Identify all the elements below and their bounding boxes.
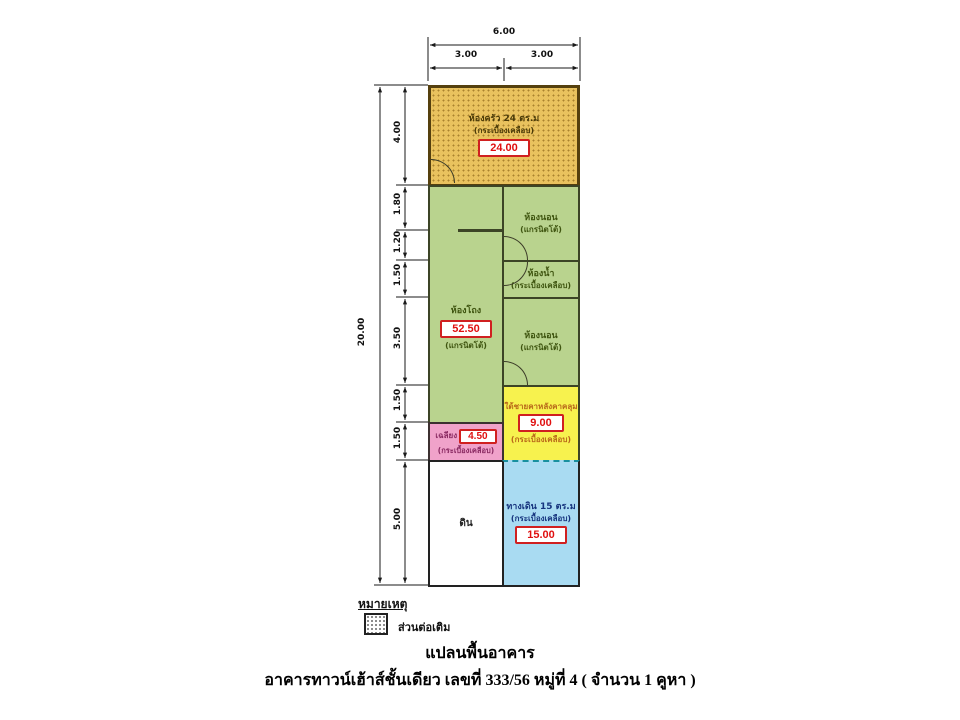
kitchen-name: ห้องครัว 24 ตร.ม (469, 113, 539, 125)
extension-swatch-icon (364, 613, 388, 635)
room-soil: ดิน (428, 460, 504, 587)
porch-area-value: 4.50 (459, 429, 496, 444)
dim-left-total: 20.00 (357, 312, 367, 352)
bedroom-top-name: ห้องนอน (524, 212, 557, 224)
plan-title: แปลนพื้นอาคาร (0, 641, 960, 666)
dim-left-seg-8: 5.00 (393, 499, 403, 539)
legend-extension-label: ส่วนต่อเติม (398, 618, 450, 636)
bathroom-material: (กระเบื้องเคลือบ) (511, 280, 571, 291)
hall-material: (แกรนิตโต้) (440, 340, 492, 351)
dim-top-total: 6.00 (469, 27, 539, 37)
bedroom-top-material: (แกรนิตโต้) (520, 224, 562, 235)
soil-name: ดิน (459, 516, 472, 531)
room-porch: เฉลียง 4.50 (กระเบื้องเคลือบ) (428, 422, 504, 462)
kitchen-area-value: 24.00 (478, 139, 530, 157)
dim-top-left: 3.00 (431, 50, 501, 60)
porch-material: (กระเบื้องเคลือบ) (438, 446, 494, 457)
floor-plan-page: ห้องครัว 24 ตร.ม (กระเบื้องเคลือบ) 24.00… (0, 0, 960, 720)
hall-area-value: 52.50 (440, 320, 492, 338)
kitchen-material: (กระเบื้องเคลือบ) (474, 125, 534, 136)
porch-name: เฉลียง (435, 431, 457, 442)
room-walkway: ทางเดิน 15 ตร.ม (กระเบื้องเคลือบ) 15.00 (502, 460, 580, 587)
covered-area-material: (กระเบื้องเคลือบ) (511, 434, 571, 445)
walkway-area-value: 15.00 (515, 526, 567, 544)
walkway-name: ทางเดิน 15 ตร.ม (506, 501, 575, 513)
bedroom-bottom-name: ห้องนอน (524, 330, 557, 342)
dim-left-seg-1: 4.00 (393, 112, 403, 152)
bathroom-name: ห้องน้ำ (528, 268, 555, 280)
dim-left-seg-7: 1.50 (393, 418, 403, 458)
legend-title: หมายเหตุ (358, 595, 407, 614)
covered-area-value: 9.00 (518, 414, 563, 432)
dim-left-seg-2: 1.80 (393, 184, 403, 224)
walkway-material: (กระเบื้องเคลือบ) (511, 513, 571, 524)
dim-left-seg-4: 1.50 (393, 255, 403, 295)
covered-area-name: ใต้ชายคาหลังคาคลุม (504, 402, 577, 413)
dim-left-seg-6: 1.50 (393, 380, 403, 420)
dim-top-right: 3.00 (507, 50, 577, 60)
room-hall: ห้องโถง 52.50 (แกรนิตโต้) (428, 185, 504, 424)
room-covered-area: ใต้ชายคาหลังคาคลุม 9.00 (กระเบื้องเคลือบ… (502, 385, 580, 462)
dim-left-seg-5: 3.50 (393, 318, 403, 358)
bedroom-bottom-material: (แกรนิตโต้) (520, 342, 562, 353)
plan-subtitle: อาคารทาวน์เฮ้าส์ชั้นเดียว เลขที่ 333/56 … (0, 668, 960, 693)
hall-wall-stub (458, 229, 504, 232)
hall-name: ห้องโถง (440, 305, 492, 317)
